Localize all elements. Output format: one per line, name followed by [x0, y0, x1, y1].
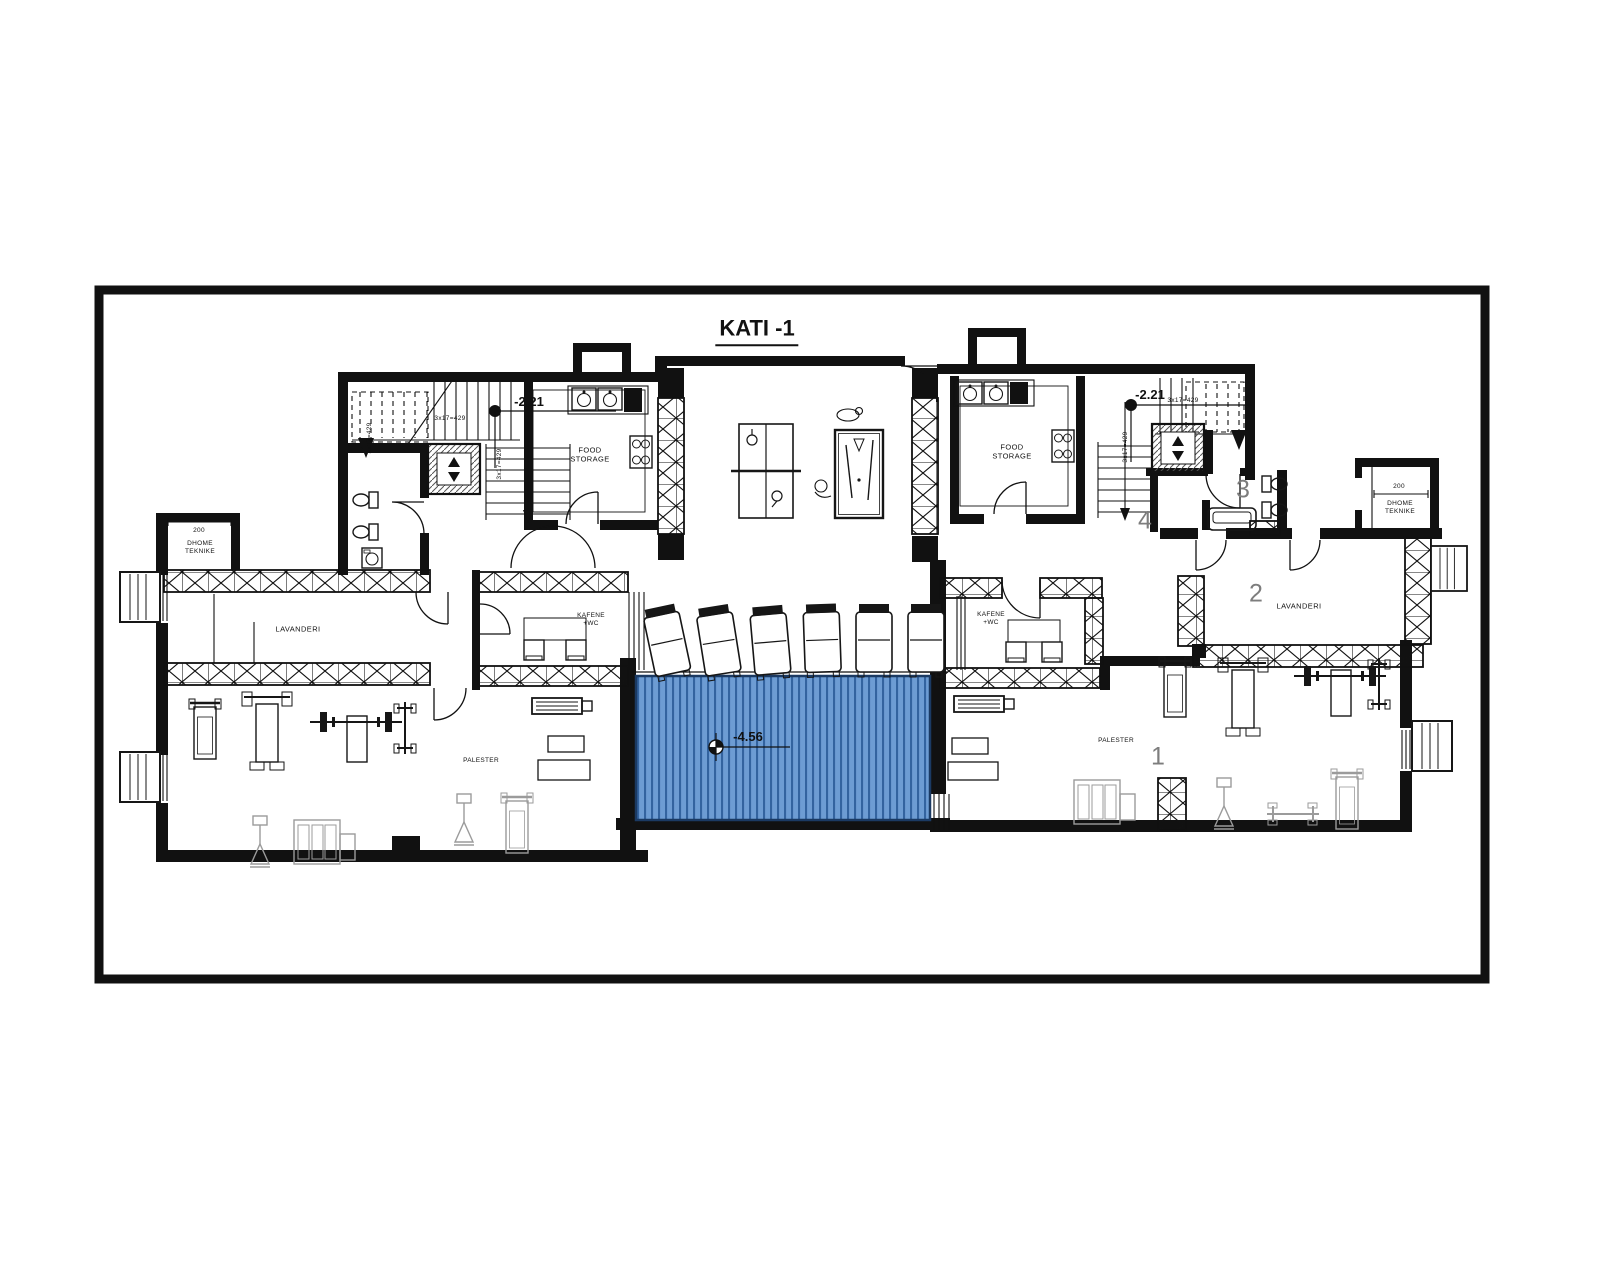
gym-machine — [948, 762, 998, 780]
elevator-left-icon — [428, 444, 480, 494]
floor-plan-sheet: KATI -1 -2.21 -2.21 -4.56 3x17=429 3x17=… — [0, 0, 1600, 1280]
gym-machine-icon — [1218, 658, 1268, 736]
rowing-machine-icon — [532, 698, 592, 714]
treadmill-icon — [501, 793, 533, 853]
lounge-chair-icon — [856, 604, 892, 677]
window-well — [120, 572, 160, 622]
window-well — [120, 752, 160, 802]
room-label-palester-left: PALESTER — [463, 757, 499, 765]
gym-machine — [952, 738, 988, 754]
washing-machine-icon — [362, 548, 382, 568]
chair-icon — [524, 640, 544, 660]
dimension-200-right: 200 — [1393, 483, 1405, 491]
chair-icon — [566, 640, 586, 660]
room-number-2: 2 — [1249, 578, 1263, 609]
decor-figure — [815, 480, 827, 492]
room-label-food-storage-left: FOOD STORAGE — [570, 446, 609, 465]
billiard-table-icon — [835, 430, 883, 518]
counter-appliance — [624, 388, 642, 412]
sheet-border — [99, 290, 1485, 979]
swimming-pool — [632, 672, 948, 820]
room-label-lavanderi-left: LAVANDERI — [275, 624, 320, 633]
lounge-chair-icon — [803, 603, 842, 677]
elevator-right-icon — [1152, 424, 1204, 472]
lounge-chair-icon — [695, 604, 742, 682]
stair-dimension: 3x17=429 — [1122, 431, 1130, 462]
kitchen-sink-icon — [598, 388, 622, 410]
room-label-kafene-right: KAFENE +WC — [977, 611, 1005, 627]
lounge-chair-icon — [908, 604, 944, 677]
elevation-label-right: -2.21 — [1135, 387, 1165, 403]
stair-dimension: 3x17=429 — [496, 448, 504, 479]
kitchen-sink-icon — [958, 382, 982, 404]
dimension-200-left: 200 — [193, 527, 205, 535]
stair-dimension: 3x17=429 — [434, 415, 465, 423]
rowing-machine-icon — [954, 696, 1014, 712]
plan-title: KATI -1 — [715, 314, 798, 346]
decor-figure — [815, 492, 831, 497]
stair-dimension: 3x17=429 — [1167, 397, 1198, 405]
chair-icon — [1006, 642, 1026, 662]
lounge-chair-icon — [642, 603, 692, 682]
exercise-machine-icon — [454, 794, 474, 845]
room-number-3: 3 — [1236, 474, 1250, 505]
stove-icon — [630, 436, 652, 468]
toilet-icon — [353, 524, 378, 540]
chair-icon — [1042, 642, 1062, 662]
room-label-kafene-left: KAFENE +WC — [577, 612, 605, 628]
floor-plan-drawing — [0, 0, 1600, 1280]
stair-dimension: 3x17=429 — [366, 422, 374, 453]
gym-machine-icon — [242, 692, 292, 770]
room-label-food-storage-right: FOOD STORAGE — [992, 443, 1031, 462]
toilet-icon — [353, 492, 378, 508]
kitchen-sink-icon — [984, 382, 1008, 404]
pool-elevation-label: -4.56 — [733, 729, 763, 745]
ping-pong-table-icon — [731, 424, 801, 518]
room-label-palester-right: PALESTER — [1098, 737, 1134, 745]
window-well — [1412, 721, 1452, 771]
room-number-4: 4 — [1138, 505, 1152, 536]
room-label-dhome-teknike-left: DHOME TEKNIKE — [185, 540, 215, 556]
room-label-lavanderi-right: LAVANDERI — [1276, 601, 1321, 610]
room-label-dhome-teknike-right: DHOME TEKNIKE — [1385, 500, 1415, 516]
barbell-bench-icon — [310, 712, 402, 762]
elevation-label-left: -2.21 — [514, 394, 544, 410]
dumbbell-rack-icon — [394, 702, 416, 754]
kitchen-sink-icon — [572, 388, 596, 410]
multi-station-icon — [1074, 780, 1135, 824]
counter-appliance — [1010, 382, 1028, 404]
lounge-chair-icon — [749, 605, 791, 681]
treadmill-icon — [189, 699, 221, 759]
room-number-1: 1 — [1151, 741, 1165, 772]
stove-icon — [1052, 430, 1074, 462]
gym-machine — [538, 760, 590, 780]
sofa-icon — [1208, 508, 1256, 530]
window-well — [1431, 546, 1467, 591]
gym-machine — [548, 736, 584, 752]
